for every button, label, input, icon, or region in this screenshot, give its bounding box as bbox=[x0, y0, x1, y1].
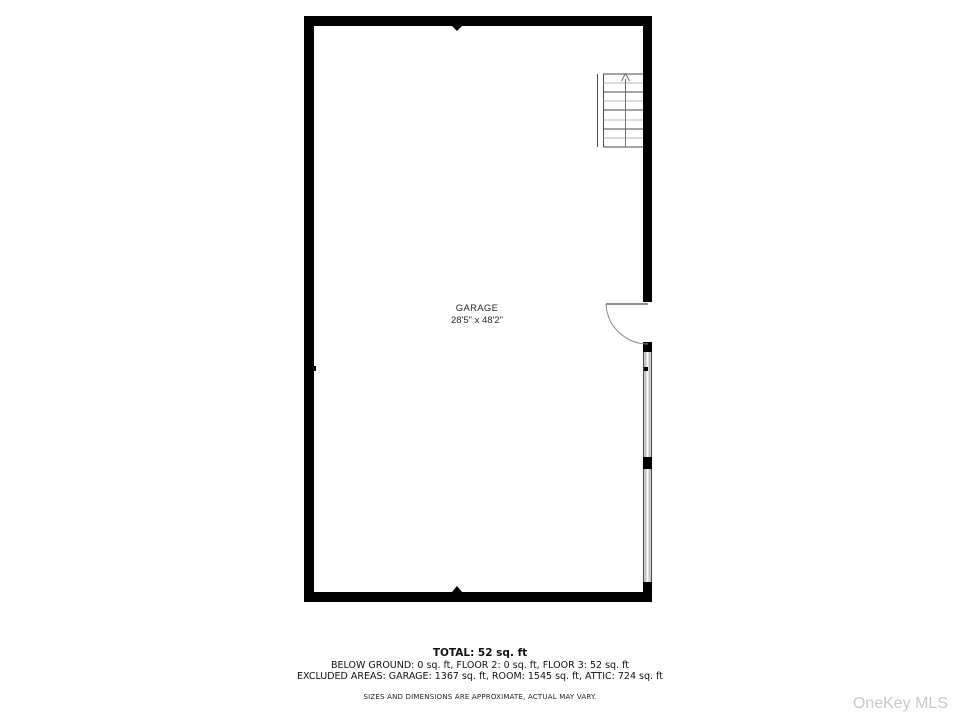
wall-post bbox=[643, 457, 652, 469]
wall-left bbox=[304, 16, 314, 602]
marker-bottom bbox=[452, 586, 462, 592]
wall-top bbox=[304, 16, 652, 26]
marker-right bbox=[644, 367, 648, 371]
wall-bottom bbox=[304, 592, 652, 602]
onekey-mls-watermark: OneKey MLS bbox=[853, 695, 948, 713]
excluded-areas-text: EXCLUDED AREAS: GARAGE: 1367 sq. ft, ROO… bbox=[0, 671, 960, 682]
floor-plan-page: GARAGE 28'5" x 48'2" TOTAL: 52 sq. ft BE… bbox=[0, 0, 960, 720]
area-summary: TOTAL: 52 sq. ft BELOW GROUND: 0 sq. ft,… bbox=[0, 647, 960, 701]
marker-left bbox=[311, 366, 316, 371]
door-arc bbox=[606, 304, 648, 344]
floor-areas-text: BELOW GROUND: 0 sq. ft, FLOOR 2: 0 sq. f… bbox=[0, 660, 960, 671]
room-name: GARAGE bbox=[377, 303, 577, 315]
door-swing-icon bbox=[606, 304, 648, 344]
stairs-up-icon bbox=[598, 74, 644, 148]
wall-right-upper bbox=[643, 16, 652, 302]
floor-plan-drawing bbox=[0, 0, 960, 720]
total-area-text: TOTAL: 52 sq. ft bbox=[0, 647, 960, 660]
wall-post bbox=[643, 582, 652, 593]
room-dimensions: 28'5" x 48'2" bbox=[377, 315, 577, 327]
room-label: GARAGE 28'5" x 48'2" bbox=[377, 303, 577, 327]
marker-top bbox=[452, 26, 462, 31]
thin-wall-right bbox=[643, 342, 652, 593]
disclaimer-text: SIZES AND DIMENSIONS ARE APPROXIMATE, AC… bbox=[0, 693, 960, 701]
